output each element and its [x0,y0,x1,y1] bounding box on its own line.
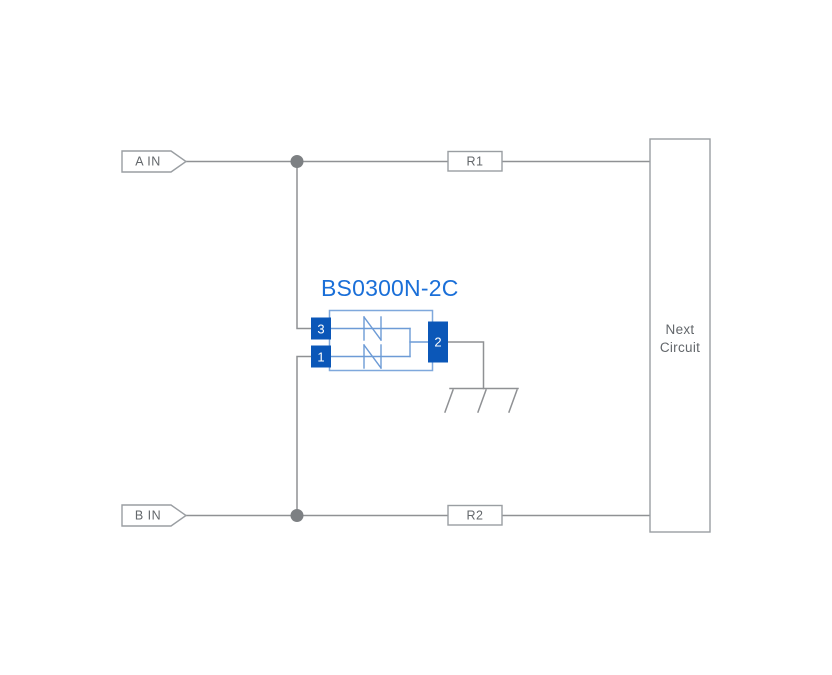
schematic-page: A IN B IN R1 R2 Next Circuit BS0300N-2C [0,0,832,675]
junction-dot-top [291,155,304,168]
next-circuit-label-line2: Circuit [660,340,700,355]
b-in-label: B IN [135,509,161,523]
pin3-label: 3 [317,322,324,337]
a-in-label: A IN [135,155,161,169]
pin2-label: 2 [434,335,441,350]
junction-dot-bottom [291,509,304,522]
circuit-schematic: A IN B IN R1 R2 Next Circuit BS0300N-2C [0,0,832,675]
resistor-r1-label: R1 [467,155,484,169]
next-circuit-label-line1: Next [666,322,695,337]
resistor-r2-label: R2 [467,509,484,523]
component-title: BS0300N-2C [321,275,459,301]
pin1-label: 1 [317,350,324,365]
